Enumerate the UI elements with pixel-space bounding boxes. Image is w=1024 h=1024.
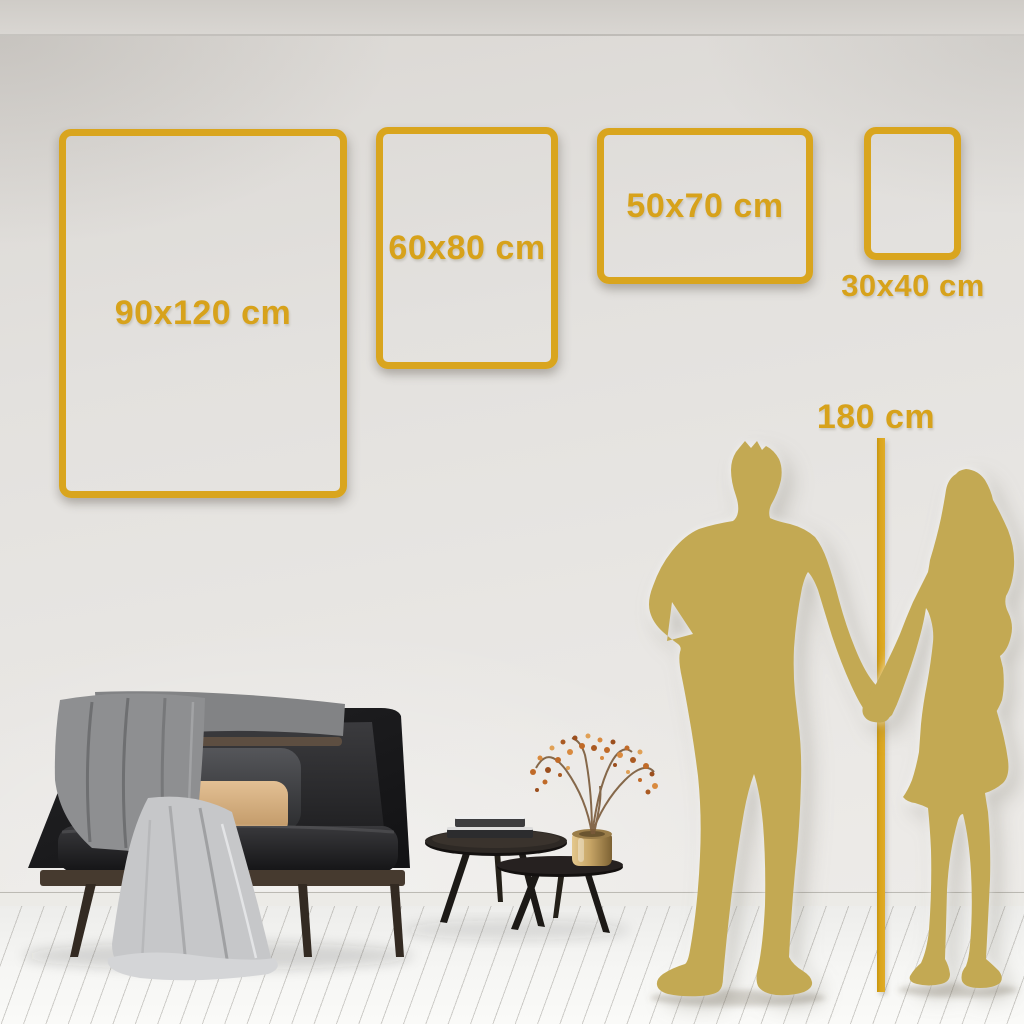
frame-50x70: 50x70 cm xyxy=(597,128,813,284)
wall-upper-band xyxy=(0,0,1024,34)
baseboard xyxy=(0,892,1024,907)
height-label-180cm: 180 cm xyxy=(776,398,976,437)
frame-60x80: 60x80 cm xyxy=(376,127,558,369)
size-label-30x40: 30x40 cm xyxy=(828,268,998,304)
size-label-90x120: 90x120 cm xyxy=(115,294,292,333)
size-label-50x70: 50x70 cm xyxy=(626,187,783,226)
frame-30x40 xyxy=(864,127,961,260)
size-guide-scene: 90x120 cm 60x80 cm 50x70 cm 30x40 cm 180… xyxy=(0,0,1024,1024)
wood-floor xyxy=(0,906,1024,1024)
height-reference-line xyxy=(877,438,885,992)
frame-90x120: 90x120 cm xyxy=(59,129,347,498)
size-label-60x80: 60x80 cm xyxy=(388,229,545,268)
